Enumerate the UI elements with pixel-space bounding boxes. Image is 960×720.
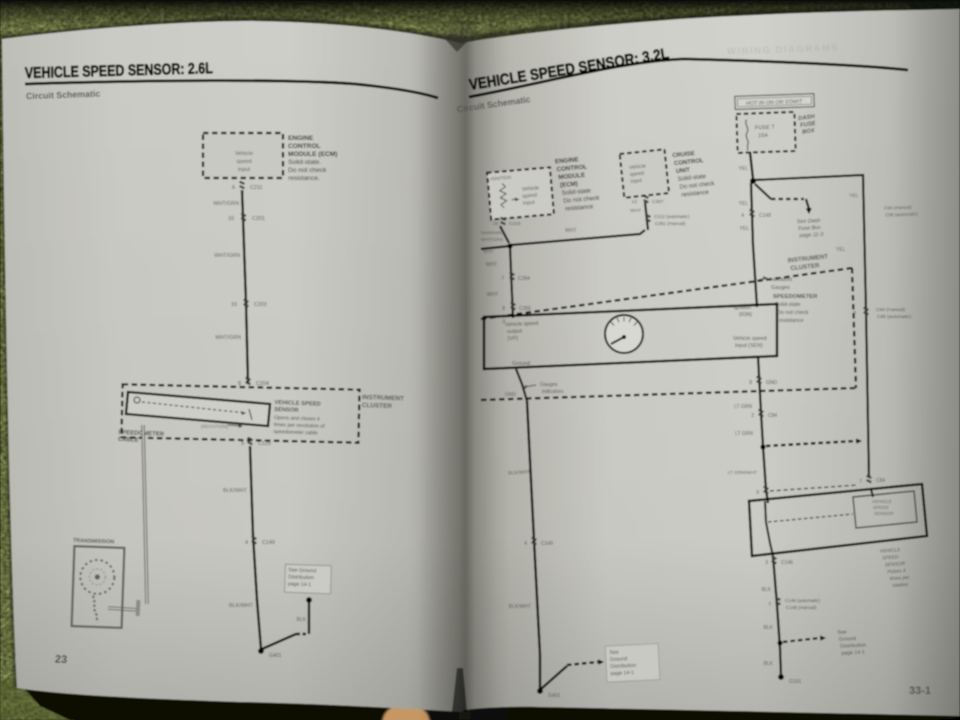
svg-text:YEL: YEL [836, 247, 846, 253]
svg-text:SENSOR: SENSOR [274, 407, 299, 414]
svg-text:WHT: WHT [486, 262, 497, 268]
svg-text:Do not check: Do not check [288, 167, 327, 174]
svg-text:8: 8 [502, 306, 505, 312]
svg-text:BLK: BLK [764, 661, 774, 667]
svg-text:Gauges: Gauges [540, 382, 558, 388]
svg-text:C129: C129 [258, 441, 271, 447]
svg-text:G401: G401 [269, 653, 282, 659]
svg-text:input: input [523, 200, 536, 207]
svg-text:indicators: indicators [542, 389, 564, 395]
svg-text:C261 (manual): C261 (manual) [655, 221, 686, 226]
svg-text:15A: 15A [758, 133, 768, 139]
svg-text:input (SEN): input (SEN) [735, 343, 763, 349]
svg-text:C201: C201 [252, 216, 265, 222]
svg-text:speed: speed [522, 193, 537, 200]
svg-text:Distribution: Distribution [288, 574, 314, 581]
svg-text:input: input [238, 167, 251, 173]
svg-text:input: input [630, 178, 642, 185]
svg-text:Do not check: Do not check [777, 310, 809, 316]
svg-text:SPEED: SPEED [882, 554, 899, 561]
svg-text:SPEED: SPEED [873, 505, 889, 510]
svg-text:YEL: YEL [740, 226, 750, 232]
svg-text:See Ground: See Ground [288, 567, 316, 574]
svg-text:FUSE 7: FUSE 7 [755, 125, 775, 132]
svg-text:Gauges: Gauges [771, 285, 790, 291]
svg-text:C264: C264 [518, 276, 530, 282]
svg-text:INSTRUMENT: INSTRUMENT [362, 394, 404, 402]
svg-text:WHT: WHT [487, 292, 498, 298]
svg-text:resistance: resistance [779, 318, 804, 324]
svg-text:resistance.: resistance. [288, 175, 320, 182]
svg-text:Vehicle: Vehicle [235, 151, 253, 157]
svg-text:(VP): (VP) [507, 336, 518, 342]
svg-text:C84 (manual): C84 (manual) [876, 307, 905, 313]
svg-text:BLK/WHT: BLK/WHT [508, 469, 531, 476]
svg-text:10: 10 [228, 216, 234, 222]
svg-text:WHT/GRN: WHT/GRN [214, 253, 240, 259]
svg-text:LT GRN: LT GRN [734, 404, 752, 410]
svg-text:9: 9 [756, 490, 759, 496]
svg-text:C219: C219 [509, 221, 521, 227]
svg-text:CLUSTER: CLUSTER [362, 402, 393, 410]
svg-text:Indicators: Indicators [769, 277, 793, 283]
svg-text:WHT/GRN: WHT/GRN [213, 201, 239, 207]
svg-text:33-1: 33-1 [909, 685, 931, 697]
svg-text:CONTROL: CONTROL [288, 143, 321, 150]
svg-text:BLK/WHT: BLK/WHT [229, 603, 254, 609]
svg-text:C84: C84 [768, 413, 777, 419]
svg-text:BLK/WHT: BLK/WHT [509, 604, 531, 610]
svg-text:Solid-state: Solid-state [775, 302, 800, 308]
svg-text:8: 8 [749, 380, 752, 386]
svg-text:MODULE (ECM): MODULE (ECM) [288, 151, 337, 158]
svg-text:4: 4 [245, 540, 248, 546]
svg-text:Vehicle speed: Vehicle speed [733, 336, 767, 342]
svg-text:Ground: Ground [610, 656, 628, 663]
svg-text:7: 7 [859, 479, 862, 485]
svg-text:page 14-1: page 14-1 [841, 649, 865, 656]
svg-text:SPEEDOMETER: SPEEDOMETER [773, 294, 818, 300]
svg-text:10: 10 [231, 302, 237, 308]
svg-text:Ground: Ground [839, 636, 857, 643]
svg-text:WHT/GRN: WHT/GRN [481, 237, 503, 242]
svg-text:(automatic): (automatic) [481, 230, 504, 235]
svg-text:(ROTATION): (ROTATION) [201, 424, 229, 430]
svg-text:2: 2 [768, 601, 771, 606]
svg-text:G101: G101 [789, 679, 801, 685]
svg-text:speed: speed [236, 159, 251, 165]
svg-text:YEL: YEL [849, 193, 859, 199]
svg-text:BLK: BLK [762, 587, 772, 593]
svg-text:WHT: WHT [483, 249, 494, 254]
svg-text:C202: C202 [254, 302, 267, 308]
svg-text:4: 4 [741, 213, 744, 219]
svg-text:C149: C149 [759, 213, 771, 219]
svg-text:3: 3 [765, 560, 768, 566]
svg-text:C204: C204 [256, 381, 269, 387]
svg-text:ENGINE: ENGINE [288, 135, 314, 142]
svg-text:C149: C149 [262, 540, 275, 546]
svg-text:BLK/WHT: BLK/WHT [223, 488, 248, 494]
svg-text:C146 (automatic): C146 (automatic) [785, 598, 821, 603]
svg-text:C86 (automatic): C86 (automatic) [877, 314, 912, 320]
svg-text:BLK: BLK [297, 617, 307, 623]
svg-text:See: See [609, 650, 619, 656]
svg-text:2: 2 [751, 413, 754, 419]
svg-text:G401: G401 [548, 693, 560, 699]
svg-text:page 14-1: page 14-1 [610, 670, 634, 677]
svg-text:C84 (manual): C84 (manual) [884, 205, 912, 211]
svg-text:C265: C265 [519, 306, 531, 312]
svg-text:Ignition: Ignition [734, 305, 751, 311]
svg-text:See Dash: See Dash [797, 218, 821, 225]
svg-text:output: output [507, 328, 523, 335]
svg-text:12: 12 [632, 199, 638, 205]
svg-text:YEL: YEL [739, 166, 749, 172]
svg-text:WHT/GRN: WHT/GRN [215, 335, 241, 341]
svg-text:C267: C267 [652, 199, 664, 205]
svg-text:CABLE: CABLE [118, 437, 139, 444]
svg-text:page 14-1: page 14-1 [288, 581, 312, 588]
svg-text:Solid-state.: Solid-state. [288, 159, 321, 166]
svg-text:C212 (automatic): C212 (automatic) [654, 214, 690, 219]
svg-text:9: 9 [241, 441, 244, 447]
svg-text:rotation: rotation [892, 582, 909, 589]
svg-text:(IGN): (IGN) [739, 312, 752, 318]
svg-text:Ground: Ground [512, 361, 530, 367]
svg-text:C146: C146 [781, 560, 793, 566]
svg-text:YEL: YEL [739, 201, 749, 207]
svg-text:BLK: BLK [764, 625, 774, 631]
svg-text:LT GRN: LT GRN [735, 431, 753, 437]
svg-text:WHT: WHT [630, 208, 641, 214]
svg-text:See: See [837, 629, 847, 635]
svg-text:C211: C211 [250, 185, 263, 191]
svg-text:GND: GND [766, 380, 778, 386]
svg-text:GND: GND [505, 392, 517, 398]
svg-text:C84: C84 [876, 478, 885, 484]
svg-text:SENSOR: SENSOR [874, 511, 894, 516]
svg-text:WHT: WHT [565, 228, 576, 234]
svg-text:Fuse Box: Fuse Box [798, 225, 821, 232]
svg-text:7: 7 [501, 276, 504, 282]
svg-text:LT GRN/WHT: LT GRN/WHT [728, 470, 757, 476]
svg-text:23: 23 [55, 653, 68, 666]
svg-text:24: 24 [493, 221, 499, 227]
svg-text:VEHICLE: VEHICLE [872, 499, 892, 504]
svg-text:6: 6 [232, 185, 235, 191]
svg-text:C148 (manual): C148 (manual) [786, 605, 817, 610]
svg-text:C149: C149 [541, 541, 553, 547]
svg-text:4: 4 [524, 541, 527, 547]
